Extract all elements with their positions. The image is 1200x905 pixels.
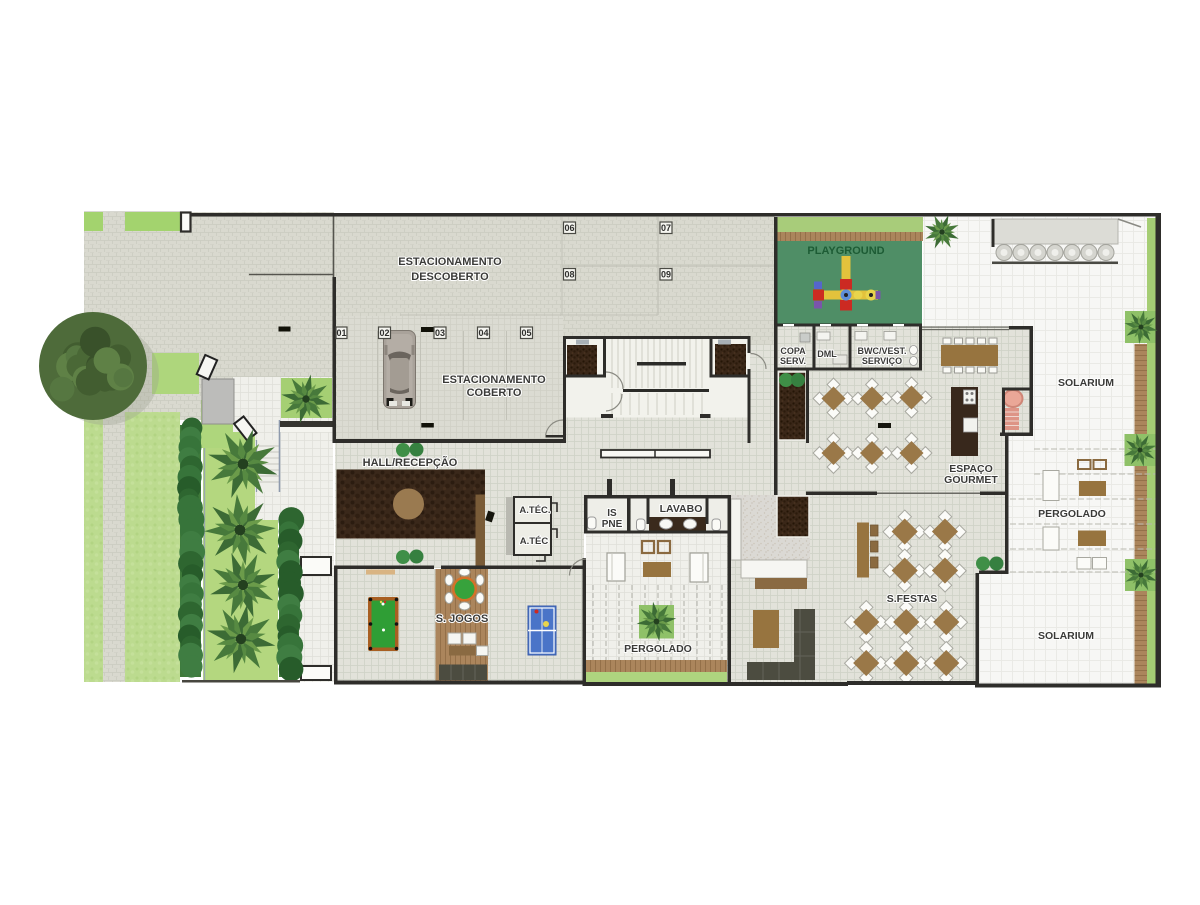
- svg-text:SOLARIUM: SOLARIUM: [1058, 377, 1114, 389]
- svg-text:A.TÉC: A.TÉC: [520, 536, 549, 547]
- svg-text:SERVIÇO: SERVIÇO: [862, 356, 902, 366]
- svg-text:LAVABO: LAVABO: [660, 503, 703, 515]
- svg-text:ESTACIONAMENTO: ESTACIONAMENTO: [398, 256, 502, 268]
- svg-text:DML: DML: [817, 349, 837, 359]
- svg-text:02: 02: [379, 328, 389, 338]
- svg-text:DESCOBERTO: DESCOBERTO: [411, 271, 489, 283]
- svg-text:06: 06: [564, 223, 574, 233]
- svg-text:PNE: PNE: [602, 519, 623, 530]
- svg-text:COBERTO: COBERTO: [467, 387, 522, 399]
- svg-text:COPA: COPA: [780, 346, 806, 356]
- svg-text:S.FESTAS: S.FESTAS: [887, 593, 938, 605]
- svg-text:09: 09: [661, 270, 671, 280]
- svg-text:03: 03: [435, 328, 445, 338]
- svg-text:HALL/RECEPÇÃO: HALL/RECEPÇÃO: [363, 456, 458, 469]
- svg-text:PLAYGROUND: PLAYGROUND: [807, 245, 884, 257]
- svg-text:BWC/VEST.: BWC/VEST.: [857, 346, 906, 356]
- svg-text:SOLARIUM: SOLARIUM: [1038, 630, 1094, 642]
- svg-text:05: 05: [521, 328, 531, 338]
- svg-text:04: 04: [478, 328, 488, 338]
- svg-text:07: 07: [661, 223, 671, 233]
- svg-text:PERGOLADO: PERGOLADO: [624, 643, 692, 655]
- svg-text:GOURMET: GOURMET: [944, 474, 998, 486]
- svg-text:08: 08: [564, 270, 574, 280]
- svg-text:PERGOLADO: PERGOLADO: [1038, 508, 1106, 520]
- svg-text:ESTACIONAMENTO: ESTACIONAMENTO: [442, 374, 546, 386]
- svg-text:S. JOGOS: S. JOGOS: [436, 613, 489, 625]
- svg-text:A.TÉC.: A.TÉC.: [519, 505, 550, 516]
- svg-text:01: 01: [336, 328, 346, 338]
- svg-text:IS: IS: [607, 508, 617, 519]
- svg-text:SERV.: SERV.: [780, 356, 806, 366]
